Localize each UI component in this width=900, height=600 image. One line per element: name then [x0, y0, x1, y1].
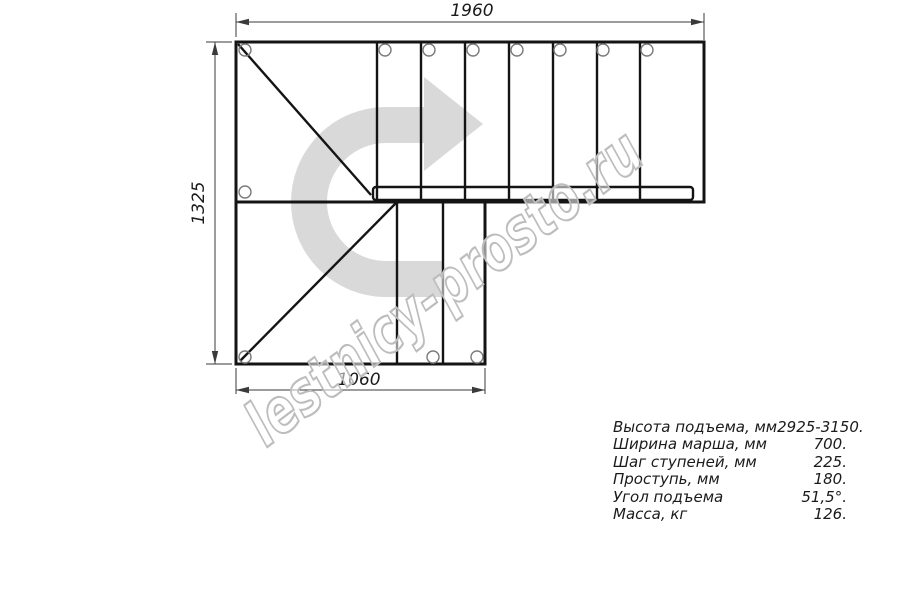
spec-value: 180. [814, 471, 847, 488]
mount-hole [471, 351, 483, 363]
spec-label: Высота подъема, мм [613, 419, 777, 436]
spec-value: 126. [814, 506, 847, 523]
spec-label: Проступь, мм [613, 471, 720, 488]
spec-row: Ширина марша, мм 700. [613, 436, 847, 453]
mount-hole [427, 351, 439, 363]
spec-label: Масса, кг [613, 506, 687, 523]
mount-hole [423, 44, 435, 56]
mount-hole [467, 44, 479, 56]
spec-row: Шаг ступеней, мм 225. [613, 454, 847, 471]
dim-arrow-icon [472, 387, 485, 393]
dim-arrow-icon [691, 19, 704, 25]
spec-row: Угол подъема 51,5°. [613, 489, 847, 506]
spec-row: Проступь, мм 180. [613, 471, 847, 488]
watermark-text: lestnicy-prosto.ru [231, 114, 657, 460]
direction-arrow-head [424, 77, 483, 171]
spec-label: Шаг ступеней, мм [613, 454, 757, 471]
dim-arrow-icon [236, 19, 249, 25]
mount-hole [641, 44, 653, 56]
spec-value: 225. [814, 454, 847, 471]
dim-arrow-icon [212, 42, 218, 55]
spec-value: 2925-3150. [777, 419, 864, 436]
mount-hole [597, 44, 609, 56]
mount-hole [379, 44, 391, 56]
spec-value: 51,5°. [801, 489, 847, 506]
dimension-left [206, 42, 232, 364]
spec-label: Угол подъема [613, 489, 723, 506]
spec-value: 700. [814, 436, 847, 453]
staircase-drawing-page: 1960 1325 1060 lestnicy-prosto.ru Высота… [0, 0, 900, 600]
spec-table: Высота подъема, мм 2925-3150. Ширина мар… [613, 419, 847, 523]
staircase-linework [236, 42, 704, 364]
spec-row: Высота подъема, мм 2925-3150. [613, 419, 847, 436]
dim-arrow-icon [212, 351, 218, 364]
mount-hole [511, 44, 523, 56]
dimension-left-label: 1325 [189, 181, 209, 224]
spec-row: Масса, кг 126. [613, 506, 847, 523]
spec-label: Ширина марша, мм [613, 436, 767, 453]
dimension-top-label: 1960 [450, 1, 493, 21]
mount-hole [554, 44, 566, 56]
mount-hole [239, 186, 251, 198]
mount-hole [239, 44, 251, 56]
